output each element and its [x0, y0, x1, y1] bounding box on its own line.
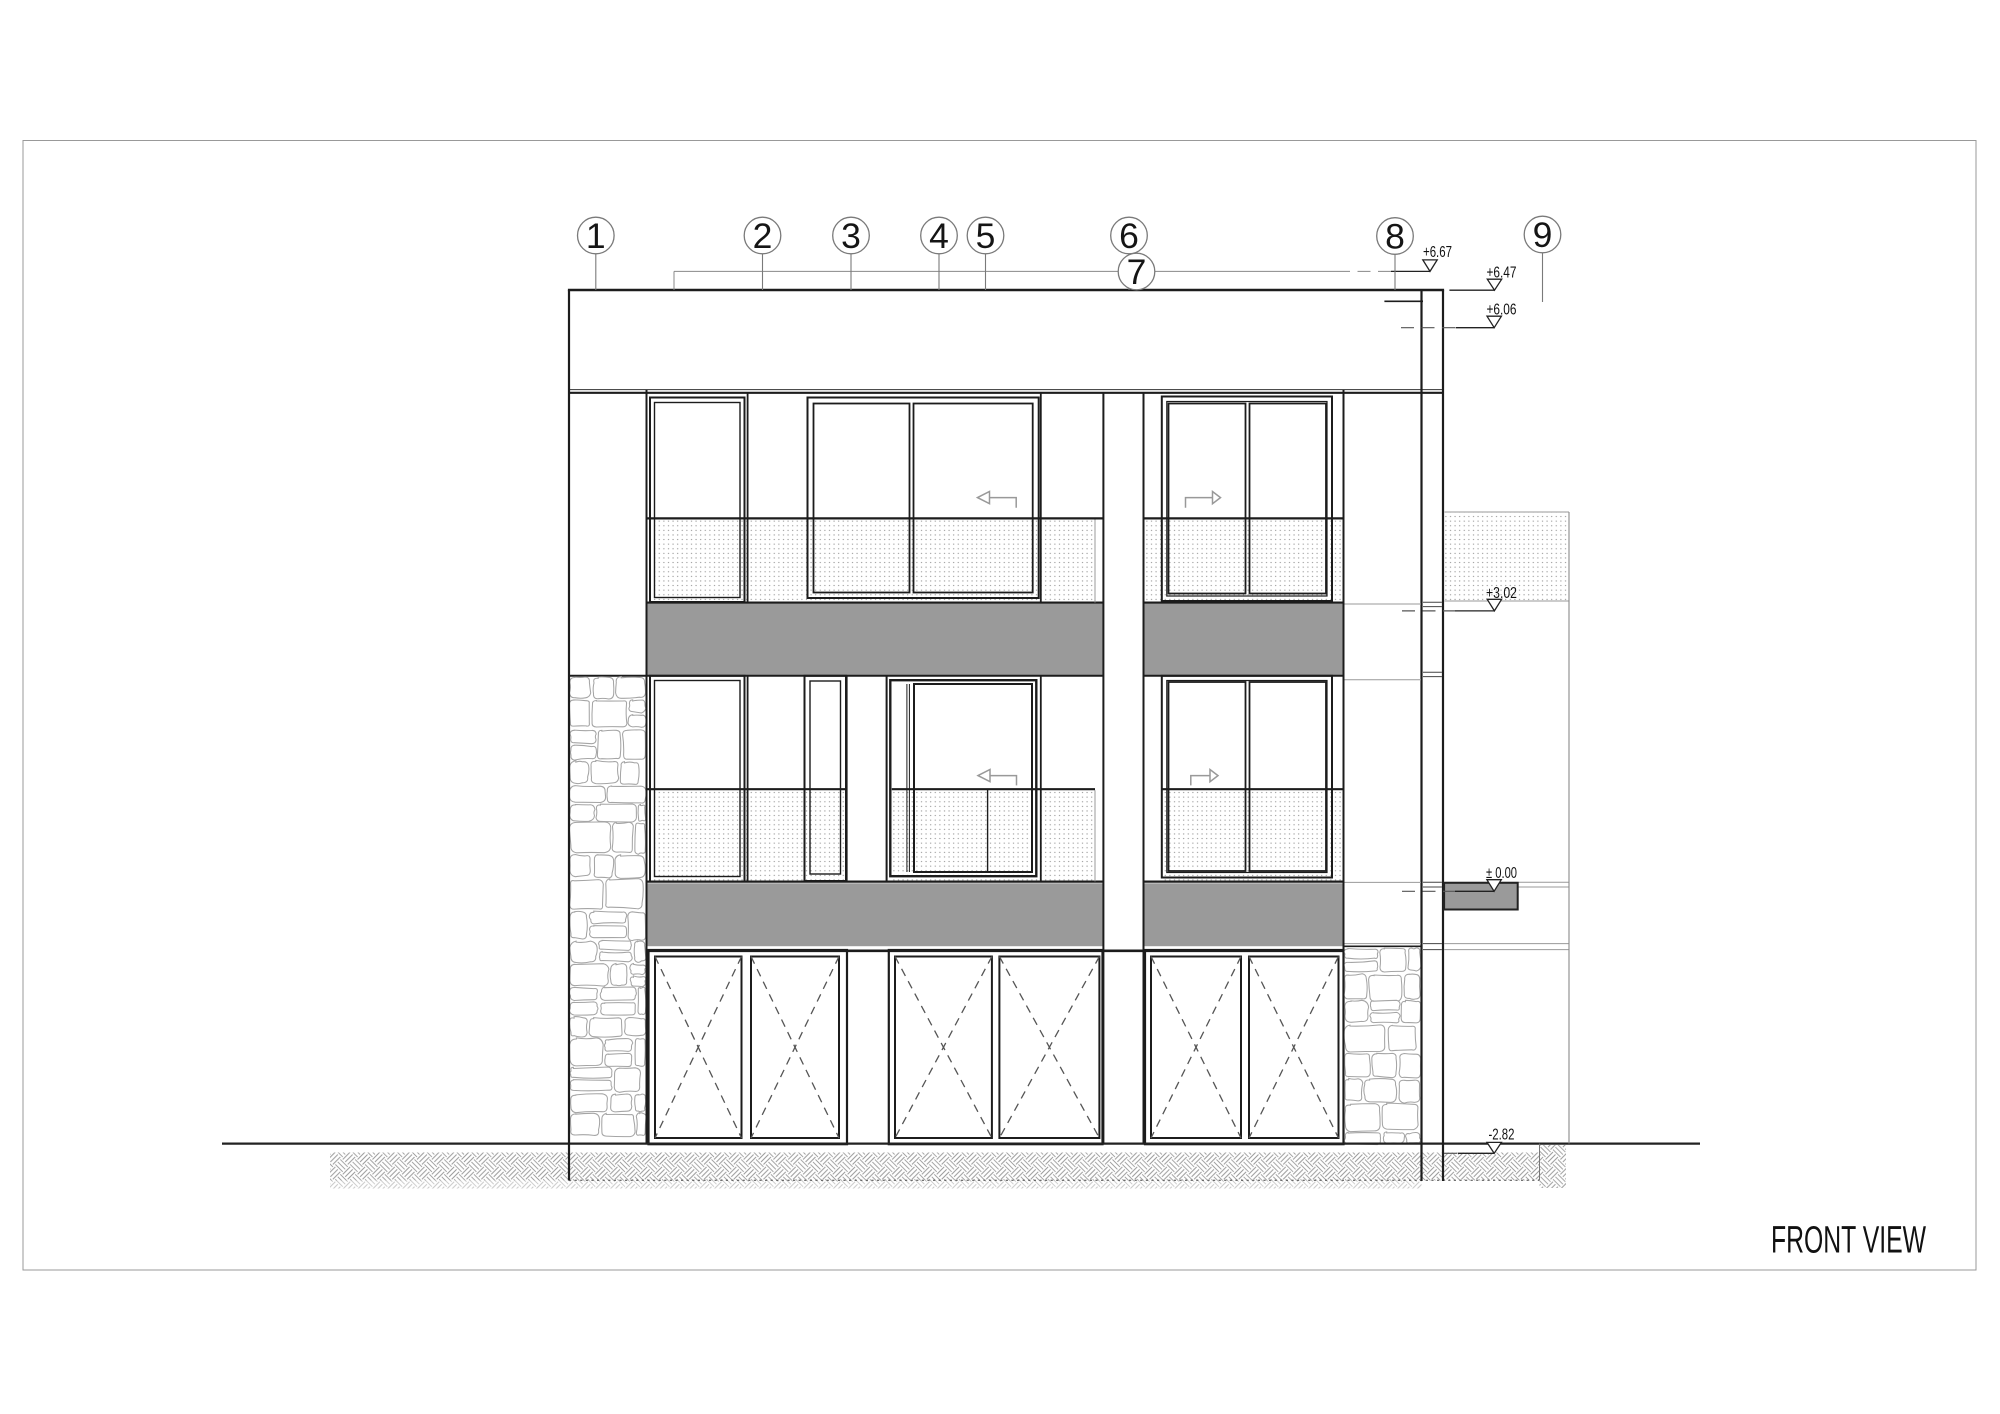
svg-text:1: 1	[586, 216, 606, 256]
svg-text:9: 9	[1533, 215, 1553, 255]
svg-text:2: 2	[753, 216, 773, 256]
svg-text:± 0.00: ± 0.00	[1486, 865, 1517, 882]
svg-text:+6.06: +6.06	[1487, 302, 1517, 319]
svg-text:6: 6	[1119, 216, 1139, 256]
svg-text:-2.82: -2.82	[1489, 1127, 1515, 1144]
svg-text:FRONT VIEW: FRONT VIEW	[1771, 1220, 1926, 1262]
svg-text:8: 8	[1385, 216, 1405, 256]
svg-text:+3.02: +3.02	[1486, 585, 1517, 602]
svg-text:3: 3	[841, 216, 861, 256]
svg-text:5: 5	[976, 216, 996, 256]
svg-text:7: 7	[1127, 252, 1147, 292]
svg-text:+6.67: +6.67	[1423, 244, 1452, 261]
svg-text:4: 4	[929, 216, 949, 256]
svg-text:+6.47: +6.47	[1487, 265, 1517, 282]
